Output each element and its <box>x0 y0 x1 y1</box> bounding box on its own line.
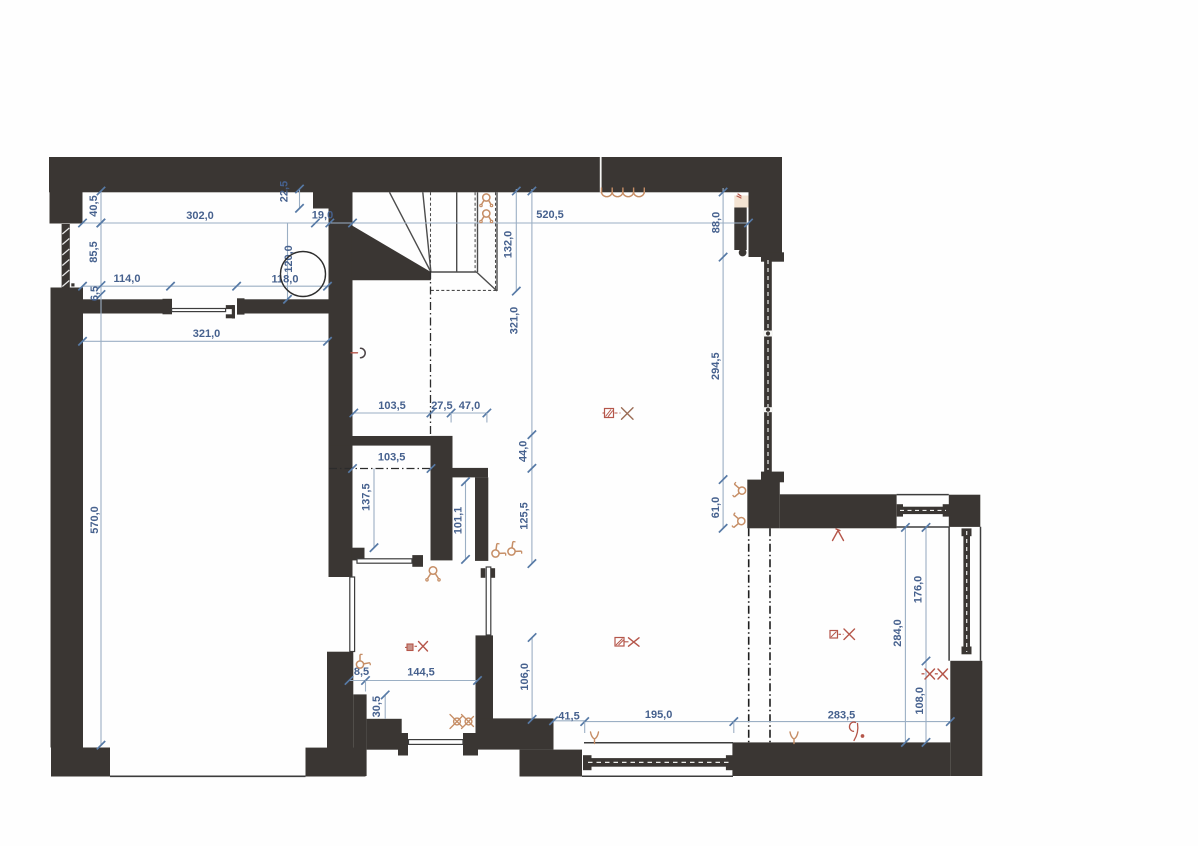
svg-text:321,0: 321,0 <box>509 307 521 335</box>
svg-text:114,0: 114,0 <box>114 273 141 285</box>
svg-text:88,0: 88,0 <box>711 212 723 233</box>
svg-text:302,0: 302,0 <box>186 210 214 222</box>
svg-text:40,5: 40,5 <box>88 195 100 216</box>
svg-text:120,0: 120,0 <box>283 245 295 273</box>
svg-text:22,5: 22,5 <box>279 181 291 202</box>
svg-text:85,5: 85,5 <box>88 241 100 262</box>
svg-text:44,0: 44,0 <box>518 441 530 462</box>
svg-text:108,0: 108,0 <box>914 687 926 715</box>
svg-text:294,5: 294,5 <box>710 352 722 380</box>
svg-text:195,0: 195,0 <box>645 709 673 721</box>
svg-text:118,0: 118,0 <box>272 274 299 286</box>
svg-text:103,5: 103,5 <box>378 452 406 464</box>
svg-text:176,0: 176,0 <box>913 576 925 604</box>
svg-text:570,0: 570,0 <box>89 506 101 534</box>
svg-text:103,5: 103,5 <box>378 400 406 412</box>
svg-text:144,5: 144,5 <box>407 667 435 679</box>
svg-text:47,0: 47,0 <box>459 400 480 412</box>
svg-text:125,5: 125,5 <box>519 502 531 530</box>
svg-text:61,0: 61,0 <box>710 497 722 518</box>
svg-text:106,0: 106,0 <box>519 663 531 691</box>
svg-text:101,1: 101,1 <box>453 507 465 535</box>
svg-text:520,5: 520,5 <box>536 209 564 221</box>
svg-text:30,5: 30,5 <box>371 696 383 717</box>
svg-text:283,5: 283,5 <box>828 710 856 722</box>
svg-text:19,0: 19,0 <box>312 210 333 222</box>
svg-text:27,5: 27,5 <box>431 400 452 412</box>
svg-text:321,0: 321,0 <box>193 328 221 340</box>
svg-text:137,5: 137,5 <box>361 483 373 511</box>
svg-text:6,5: 6,5 <box>89 286 101 301</box>
svg-text:132,0: 132,0 <box>503 231 515 259</box>
svg-text:41,5: 41,5 <box>558 711 579 723</box>
svg-text:284,0: 284,0 <box>892 619 904 647</box>
